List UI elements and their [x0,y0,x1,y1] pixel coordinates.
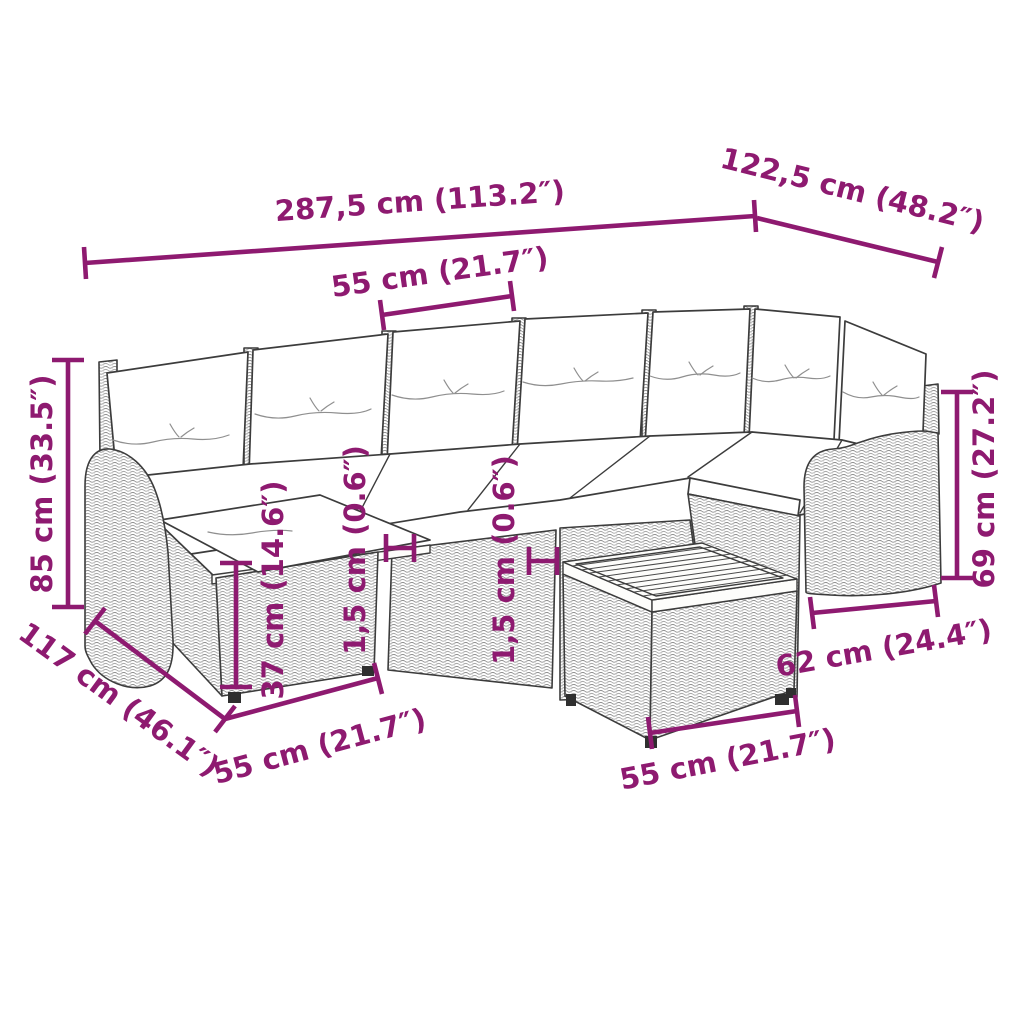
dim-seat-width: 55 cm (21.7″) [329,240,551,330]
back-pillow [749,309,840,440]
dim-back-height-label: 69 cm (27.2″) [967,370,1001,589]
right-armrest [804,431,941,596]
dim-right-depth: 122,5 cm (48.2″) [717,141,988,278]
dim-total-height: 85 cm (33.5″) [25,360,84,607]
dim-gap-right-label: 1,5 cm (0.6″) [487,455,521,665]
dim-arm-section-width-label: 62 cm (24.4″) [773,612,995,684]
coffee-table [563,543,797,740]
dimension-diagram: 287,5 cm (113.2″) 122,5 cm (48.2″) 55 cm… [0,0,1024,1024]
dim-footstool-height-label: 37 cm (14.6″) [256,481,290,700]
dim-gap-left-label: 1,5 cm (0.6″) [338,445,372,655]
dimension-diagram-page: 287,5 cm (113.2″) 122,5 cm (48.2″) 55 cm… [0,0,1024,1024]
foot [566,694,576,706]
dim-overall-width-label: 287,5 cm (113.2″) [274,174,566,228]
dim-back-height: 69 cm (27.2″) [941,370,1001,589]
foot [775,694,789,705]
dim-total-height-label: 85 cm (33.5″) [25,375,59,594]
dim-seat-width-label: 55 cm (21.7″) [329,240,551,304]
back-pillow [387,321,520,462]
dim-arm-section-width: 62 cm (24.4″) [773,585,995,684]
foot [362,666,374,676]
back-pillow [517,313,648,452]
back-pillow [645,309,750,444]
foot [228,692,241,703]
